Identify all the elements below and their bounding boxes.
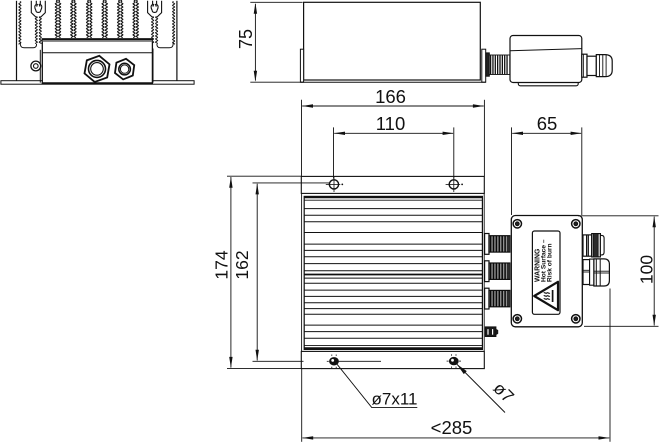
svg-text:75: 75 xyxy=(236,29,256,49)
svg-text:65: 65 xyxy=(537,113,558,134)
svg-text:Risk of burn: Risk of burn xyxy=(546,244,553,282)
svg-text:166: 166 xyxy=(375,86,406,107)
svg-text:100: 100 xyxy=(637,255,657,284)
svg-text:ø7: ø7 xyxy=(489,378,518,407)
svg-text:110: 110 xyxy=(376,113,406,134)
svg-text:162: 162 xyxy=(232,250,252,279)
svg-text:<285: <285 xyxy=(431,417,473,438)
svg-text:174: 174 xyxy=(212,250,232,279)
svg-text:ø7x11: ø7x11 xyxy=(372,389,418,408)
